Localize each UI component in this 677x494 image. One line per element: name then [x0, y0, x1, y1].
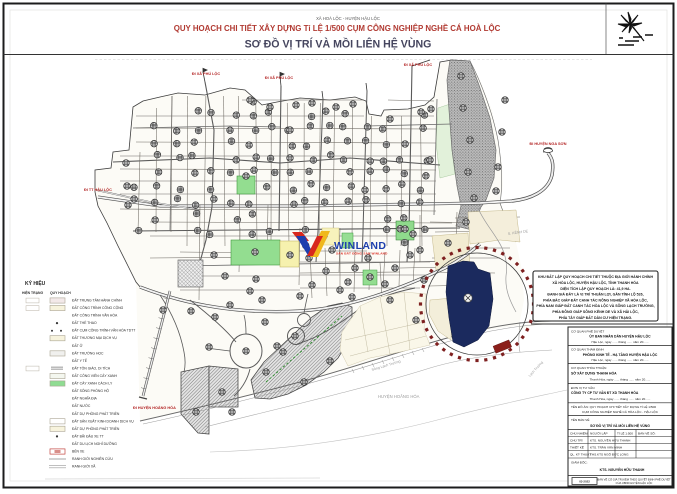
- svg-text:ĐI HUYỆN NGA SƠN: ĐI HUYỆN NGA SƠN: [529, 141, 566, 146]
- svg-text:CỤM CÔNG NGHIỆP NGHỀ CÁ HÒA LỘ: CỤM CÔNG NGHIỆP NGHỀ CÁ HÒA LỘC - HẬU LỘ…: [582, 409, 659, 414]
- svg-text:ĐẤT THỂ THAO: ĐẤT THỂ THAO: [72, 320, 97, 325]
- svg-text:ĐẤT SẢN XUẤT KINH DOANH DỊCH V: ĐẤT SẢN XUẤT KINH DOANH DỊCH VỤ: [72, 418, 134, 423]
- svg-text:CƠ QUAN THẨM ĐỊNH: CƠ QUAN THẨM ĐỊNH: [571, 347, 604, 352]
- svg-text:ĐẤT DU LỊCH NGHỈ DƯỠNG: ĐẤT DU LỊCH NGHỈ DƯỠNG: [72, 441, 117, 446]
- svg-text:THIẾT KẾ: THIẾT KẾ: [570, 445, 584, 450]
- svg-text:Hậu Lộc, ngày ...... tháng ...: Hậu Lộc, ngày ...... tháng ...... năm 20…: [592, 358, 649, 362]
- svg-text:RANH GIỚI NGHIÊN CỨU: RANH GIỚI NGHIÊN CỨU: [72, 456, 113, 461]
- svg-text:TÊN BẢN VẼ: TÊN BẢN VẼ: [571, 417, 589, 422]
- svg-text:XÃ HÒA LỘC, HUYỆN HẬU LỘC, TỈN: XÃ HÒA LỘC, HUYỆN HẬU LỘC, TỈNH THANH HÓ…: [552, 280, 639, 285]
- svg-text:HIỆN TRẠNG: HIỆN TRẠNG: [22, 290, 43, 295]
- svg-text:PHÍA BẮC GIÁP ĐẤT CANH TÁC NÔN: PHÍA BẮC GIÁP ĐẤT CANH TÁC NÔNG NGHIỆP X…: [543, 297, 648, 302]
- svg-text:CƠ QUAN PHÊ DUYỆT: CƠ QUAN PHÊ DUYỆT: [571, 329, 604, 334]
- svg-text:BẢN VẼ SỐ:: BẢN VẼ SỐ:: [638, 431, 656, 436]
- svg-text:ĐƠN VỊ TƯ VẤN: ĐƠN VỊ TƯ VẤN: [571, 386, 594, 390]
- svg-text:ĐẤT NƯỚC: ĐẤT NƯỚC: [72, 403, 91, 408]
- svg-text:RANH GIỚI XÃ: RANH GIỚI XÃ: [72, 464, 96, 469]
- svg-text:ĐẤT CÔNG TRÌNH VĂN HÓA: ĐẤT CÔNG TRÌNH VĂN HÓA: [72, 313, 118, 318]
- svg-text:HUYỆN HOẰNG HÓA: HUYỆN HOẰNG HÓA: [378, 394, 420, 399]
- svg-text:ĐẤT TÔN GIÁO, DI TÍCH: ĐẤT TÔN GIÁO, DI TÍCH: [72, 365, 111, 370]
- svg-text:ĐẤT NGHĨA ĐỊA: ĐẤT NGHĨA ĐỊA: [72, 396, 98, 401]
- svg-text:ĐẤT SÔNG PHÒNG HỘ: ĐẤT SÔNG PHÒNG HỘ: [72, 388, 109, 393]
- svg-text:KÝ HIỆU: KÝ HIỆU: [25, 279, 46, 287]
- svg-text:XÃ HOÀ LỘC - HUYỆN HẬU LỘC: XÃ HOÀ LỘC - HUYỆN HẬU LỘC: [316, 16, 380, 21]
- svg-text:CÔNG TY CP TƯ VẤN ĐT XD THANH: CÔNG TY CP TƯ VẤN ĐT XD THANH HÓA: [571, 390, 639, 395]
- svg-text:Thanh Hóa, ngày ...... tháng .: Thanh Hóa, ngày ...... tháng ...... năm …: [590, 378, 651, 382]
- svg-text:ĐI TT HẬU LỘC: ĐI TT HẬU LỘC: [84, 187, 112, 192]
- svg-text:ĐẤT DỰ PHÒNG PHÁT TRIỂN: ĐẤT DỰ PHÒNG PHÁT TRIỂN: [72, 426, 120, 431]
- svg-text:ĐẤT CÔNG TRÌNH CÔNG CỘNG: ĐẤT CÔNG TRÌNH CÔNG CỘNG: [72, 305, 124, 310]
- svg-text:GIÁM ĐỐC:: GIÁM ĐỐC:: [571, 460, 588, 465]
- svg-text:ĐI XÃ PHÚ LỘC: ĐI XÃ PHÚ LỘC: [192, 71, 221, 76]
- svg-text:QL. KỲ THUẬT: QL. KỲ THUẬT: [570, 453, 591, 457]
- svg-text:SỞ XÂY DỰNG THANH HÓA: SỞ XÂY DỰNG THANH HÓA: [571, 370, 617, 375]
- svg-text:03-2022: 03-2022: [579, 480, 590, 484]
- svg-text:THS.KTS NGÔ ĐỨC LONG: THS.KTS NGÔ ĐỨC LONG: [590, 452, 629, 457]
- svg-text:Thanh Hóa, ngày ...... tháng .: Thanh Hóa, ngày ...... tháng ...... năm …: [590, 397, 651, 401]
- svg-text:TÊN ĐỒ ÁN: QUY HOẠCH CHI TIẾT: TÊN ĐỒ ÁN: QUY HOẠCH CHI TIẾT XÂY DỰNG T…: [571, 404, 656, 409]
- svg-text:ĐANH GIÁ ĐÂY LÀ VỊ TRÍ THUẬN L: ĐANH GIÁ ĐÂY LÀ VỊ TRÍ THUẬN LỢI, GẦN TỈ…: [547, 292, 643, 297]
- svg-text:CƠ QUAN THỎA THUẬN: CƠ QUAN THỎA THUẬN: [571, 365, 606, 370]
- svg-text:Hậu Lộc, ngày ...... tháng ...: Hậu Lộc, ngày ...... tháng ...... năm 20…: [592, 340, 649, 344]
- svg-text:CHỦ NHIỆM: CHỦ NHIỆM: [570, 431, 588, 436]
- svg-text:DIỆN TÍCH LẬP QUY HOẠCH LÀ: 41: DIỆN TÍCH LẬP QUY HOẠCH LÀ: 41,9 HA.: [560, 286, 630, 291]
- svg-text:SÀN BẤT ĐỘNG SẢN WINLAND: SÀN BẤT ĐỘNG SẢN WINLAND: [336, 251, 388, 256]
- svg-text:ĐI HUYỆN HOẰNG HÓA: ĐI HUYỆN HOẰNG HÓA: [133, 405, 176, 410]
- svg-text:KTS. TRẦN VĂN MINH: KTS. TRẦN VĂN MINH: [590, 446, 622, 450]
- svg-text:ĐẤT CÂY XANH CÁCH LY: ĐẤT CÂY XANH CÁCH LY: [72, 382, 113, 386]
- svg-text:KTS. NGUYỄN HỮU THANH: KTS. NGUYỄN HỮU THANH: [600, 467, 645, 472]
- svg-text:PHÍA TÂY GIÁP ĐẤT DÂN CƯ HIỆN: PHÍA TÂY GIÁP ĐẤT DÂN CƯ HIỆN TRẠNG.: [559, 315, 632, 320]
- svg-text:ĐẤT TRUNG TÂM HÀNH CHÍNH: ĐẤT TRUNG TÂM HÀNH CHÍNH: [72, 299, 122, 303]
- svg-text:QUY HOẠCH CHI TIẾT XÂY DỰNG Tỉ: QUY HOẠCH CHI TIẾT XÂY DỰNG Tỉ LỆ 1/500 …: [174, 23, 501, 33]
- svg-text:BẾN XE: BẾN XE: [72, 449, 85, 454]
- svg-text:WINLAND: WINLAND: [334, 240, 386, 252]
- svg-text:ỦY BAN NHÂN DÂN HUYỆN HẬU LỘC: ỦY BAN NHÂN DÂN HUYỆN HẬU LỘC: [589, 334, 651, 339]
- svg-text:TỈ LỆ 1:500: TỈ LỆ 1:500: [617, 431, 633, 436]
- svg-text:KHU ĐẤT LẬP QUY HOẠCH CHI TIẾT: KHU ĐẤT LẬP QUY HOẠCH CHI TIẾT THUỘC ĐỊA…: [538, 274, 654, 279]
- svg-text:ĐẤT THƯƠNG MẠI DỊCH VỤ: ĐẤT THƯƠNG MẠI DỊCH VỤ: [72, 336, 117, 340]
- svg-text:PHÍA ĐÔNG GIÁP SÔNG KÊNH DE VÀ: PHÍA ĐÔNG GIÁP SÔNG KÊNH DE VÀ XÃ HẢI LỘ…: [552, 309, 638, 314]
- svg-text:ĐẤT TRƯỜNG HỌC: ĐẤT TRƯỜNG HỌC: [72, 350, 104, 355]
- svg-text:KTS. NGUYỄN HỮU THANH: KTS. NGUYỄN HỮU THANH: [590, 438, 630, 443]
- svg-text:ĐI XÃ PHÚ LỘC: ĐI XÃ PHÚ LỘC: [404, 62, 433, 67]
- svg-text:NGƯỜI LẬP: NGƯỜI LẬP: [590, 431, 608, 436]
- svg-text:CHỦ TRÌ: CHỦ TRÌ: [570, 438, 583, 443]
- svg-text:ĐẤT Ở: ĐẤT Ở: [72, 343, 83, 348]
- svg-text:ĐẤT CÔNG VIÊN CÂY XANH: ĐẤT CÔNG VIÊN CÂY XANH: [72, 373, 117, 378]
- svg-text:ĐẤT Y TẾ: ĐẤT Y TẾ: [72, 358, 88, 363]
- svg-text:SƠ ĐỒ VỊ TRÍ VÀ MỒI LIÊN HỆ VÙ: SƠ ĐỒ VỊ TRÍ VÀ MỒI LIÊN HỆ VÙNG: [590, 423, 650, 428]
- svg-text:ĐẤT DỰ PHÒNG PHÁT TRIỂN: ĐẤT DỰ PHÒNG PHÁT TRIỂN: [72, 411, 120, 416]
- svg-text:ĐẤT BÃI ĐẬU XE TT: ĐẤT BÃI ĐẬU XE TT: [72, 433, 104, 438]
- svg-text:ĐẤT CỤM CÔNG TRÌNH VĂN HÓA TDT: ĐẤT CỤM CÔNG TRÌNH VĂN HÓA TDTT: [72, 328, 135, 333]
- svg-text:QUY HOẠCH: QUY HOẠCH: [50, 291, 71, 295]
- svg-text:PHÍA NAM GIÁP ĐẤT CANH TÁC HÒA: PHÍA NAM GIÁP ĐẤT CANH TÁC HÒA LỘC VÀ SÔ…: [536, 303, 654, 308]
- svg-text:SƠ ĐỒ VỊ TRÍ VÀ MỒI LIÊN HỆ VÙ: SƠ ĐỒ VỊ TRÍ VÀ MỒI LIÊN HỆ VÙNG: [245, 38, 432, 51]
- svg-text:PHÒNG KINH TẾ - HẠ TẦNG HUYỆN: PHÒNG KINH TẾ - HẠ TẦNG HUYỆN HẬU LỘC: [583, 352, 658, 357]
- svg-text:ĐI XÃ PHÚ LỘC: ĐI XÃ PHÚ LỘC: [265, 75, 294, 80]
